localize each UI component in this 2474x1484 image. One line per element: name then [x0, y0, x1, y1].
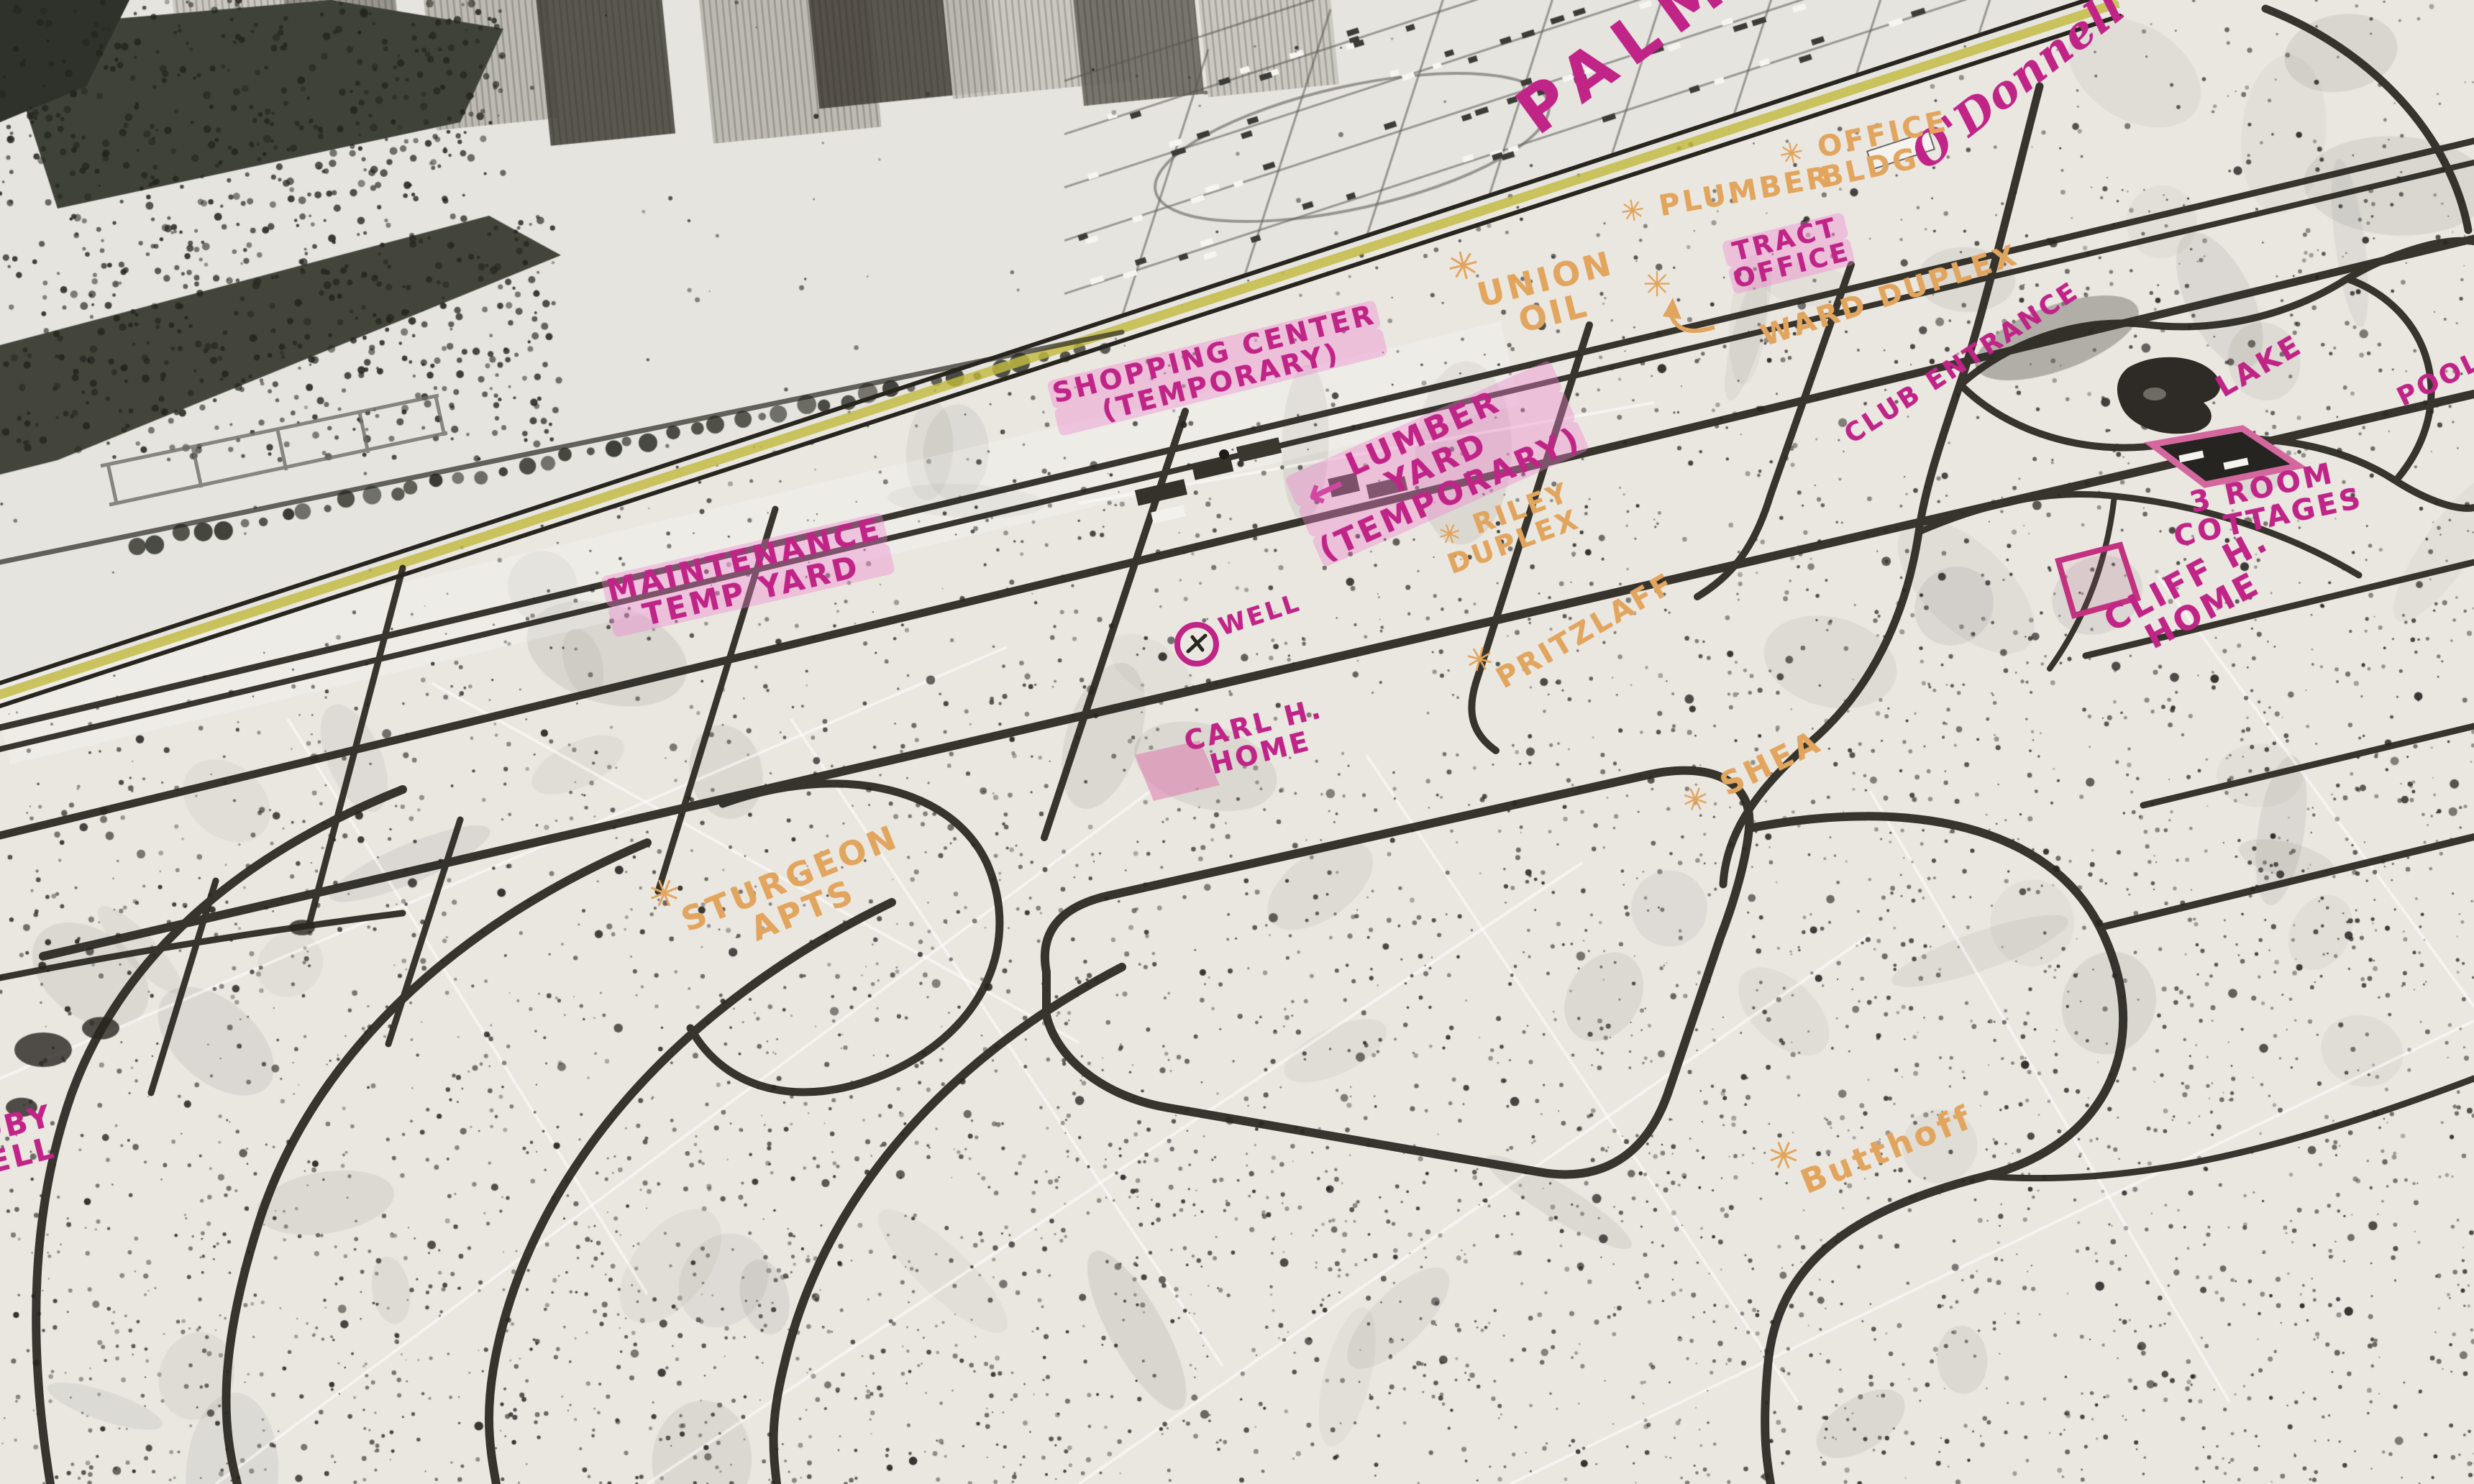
label-standby-well: DBYELL: [0, 1100, 64, 1180]
annotation-labels: PALMO'Donnell✳ OFFICEBLDG✳ PLUMBER✳UNION…: [0, 0, 2474, 1484]
label-well: WELL: [1216, 590, 1305, 641]
aerial-map: ← ✳ PALMO'Donnell✳ OFFICEBLDG✳ PLUMBER✳U…: [0, 0, 2474, 1484]
label-palm: PALM: [1505, 0, 1745, 146]
label-butthoff: ✳Butthoff: [1785, 1072, 1978, 1200]
label-pritzlaff: ✳PRITZLAFF: [1479, 545, 1680, 694]
label-shea: ✳ SHEA: [1677, 725, 1827, 820]
label-lake: LAKE: [2211, 330, 2308, 403]
label-shopping-center: SHOPPING CENTER(TEMPORARY): [1046, 300, 1389, 436]
label-union-oil: ✳UNIONOIL: [1466, 217, 1625, 347]
label-tract-office: TRACTOFFICE: [1721, 212, 1855, 295]
label-plumber: ✳ PLUMBER: [1618, 162, 1833, 229]
label-maintenance-yard: MAINTENANCETEMP YARD: [601, 512, 895, 638]
label-carl-home: CARL H.HOME: [1182, 695, 1333, 784]
label-pool: POOL: [2393, 348, 2474, 411]
label-sturgeon-apts: ✳STURGEONAPTS: [665, 792, 916, 970]
asterisk-icon: ✳: [1618, 191, 1662, 230]
